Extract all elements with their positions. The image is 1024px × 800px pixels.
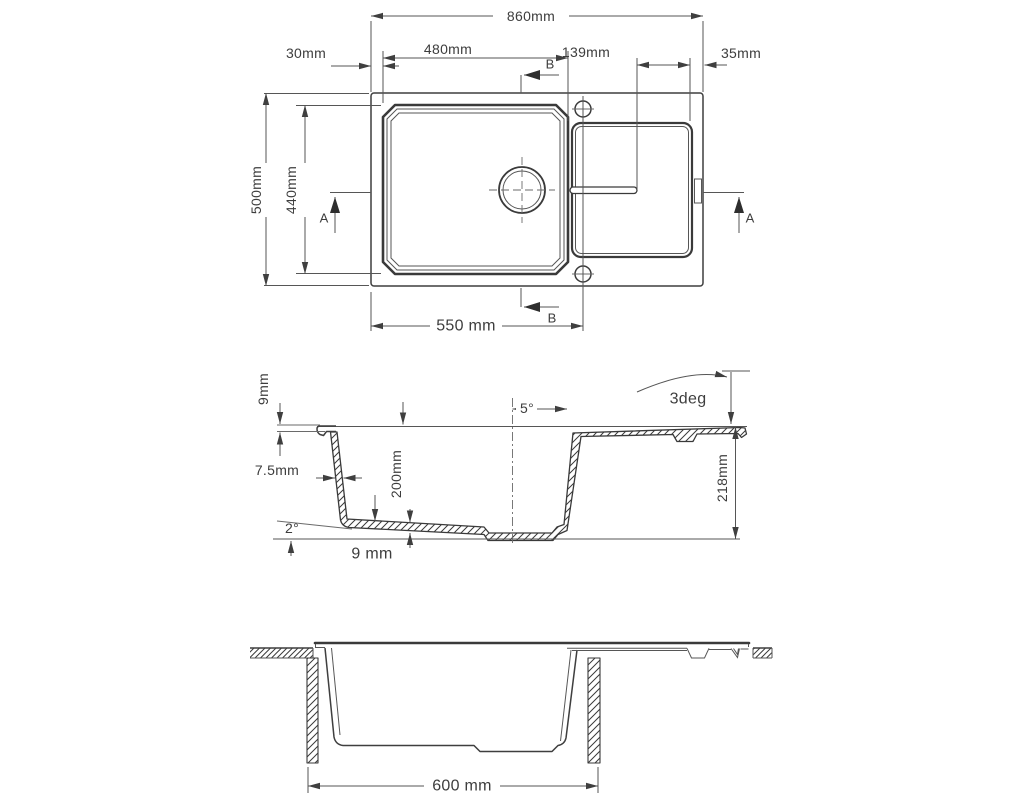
drip-groove (687, 648, 709, 658)
dim-wall-angle: 5° (513, 398, 568, 546)
dim-label-overall-depth: 500mm (248, 166, 264, 214)
drain-groove (570, 187, 637, 194)
bowl-rim-inner-1 (387, 109, 564, 270)
countertop-left (250, 648, 313, 658)
installation-view: 600 mm (250, 643, 772, 795)
section-label-b-top: B (546, 57, 555, 72)
bowl-rim-inner-2 (391, 113, 560, 266)
dim-overall-width: 860mm (371, 8, 703, 24)
sink-technical-drawing: 860mm 480mm 30mm 139mm 35mm 500mm (0, 0, 1024, 800)
label-mask (298, 163, 312, 217)
dim-left-margin: 30mm (286, 45, 399, 66)
cabinet-wall-left (307, 658, 318, 763)
dim-label-left-margin: 30mm (286, 45, 326, 61)
section-marker-a-left: A (320, 193, 371, 234)
dim-label-rim-thickness: 9mm (255, 373, 271, 405)
plan-view: 860mm 480mm 30mm 139mm 35mm 500mm (248, 8, 761, 335)
dim-base-thickness: 9 mm (351, 509, 410, 563)
dim-label-cabinet-width: 600 mm (432, 778, 492, 795)
cabinet-wall-right (588, 658, 600, 763)
section-marker-b-bottom: B (521, 288, 559, 326)
dim-label-tap-offset: 550 mm (436, 318, 496, 335)
overflow-slot (695, 179, 702, 203)
drainboard-underside (567, 648, 749, 658)
dim-right-margin: 35mm (705, 45, 762, 65)
dim-label-wall-thickness: 7.5mm (255, 462, 299, 478)
dim-label-drainer-length: 139mm (562, 44, 610, 60)
plan-extension-lines (264, 21, 703, 331)
section-label-a-right: A (746, 211, 755, 226)
drawing-page: 860mm 480mm 30mm 139mm 35mm 500mm (0, 0, 1024, 800)
edge-hook (731, 649, 740, 658)
dim-base-angle: 2° (277, 520, 352, 556)
dim-label-base-thickness: 9 mm (351, 546, 392, 563)
dim-label-wall-angle: 5° (520, 400, 534, 416)
dim-label-bowl-depth: 200mm (388, 450, 404, 498)
dim-label-base-angle: 2° (285, 520, 299, 536)
dim-bowl-width: 480mm (383, 41, 568, 58)
dim-label-bowl-length: 440mm (283, 166, 299, 214)
dim-cabinet-width: 600 mm (308, 767, 598, 795)
section-label-b-bottom: B (548, 311, 557, 326)
dim-overall-height: 218mm (714, 427, 736, 539)
section-view: 9mm 7.5mm 200mm 9 mm 2° (255, 371, 750, 563)
dim-drainer-angle: 3deg (637, 371, 750, 424)
bowl-outline (383, 105, 568, 274)
dim-bowl-depth: 200mm (375, 402, 404, 521)
dim-rim-thickness: 9mm (255, 373, 325, 456)
sink-rim-profile (315, 643, 749, 648)
dim-drainer-length: 139mm (562, 44, 690, 65)
countertop-right (753, 648, 772, 658)
section-marker-b-top: B (521, 57, 559, 94)
dim-label-overall-width: 860mm (507, 8, 555, 24)
bowl-profile (325, 648, 577, 752)
dim-label-drainer-angle: 3deg (670, 391, 707, 408)
section-marker-a-right: A (703, 193, 755, 234)
dim-overall-depth: 500mm (248, 93, 273, 286)
section-label-a-left: A (320, 211, 329, 226)
drain-hole (489, 157, 555, 223)
dim-label-bowl-width: 480mm (424, 41, 472, 57)
dim-label-overall-height: 218mm (714, 454, 730, 502)
dim-label-right-margin: 35mm (721, 45, 761, 61)
dim-wall-thickness: 7.5mm (255, 462, 362, 478)
dim-bowl-length: 440mm (283, 105, 312, 274)
